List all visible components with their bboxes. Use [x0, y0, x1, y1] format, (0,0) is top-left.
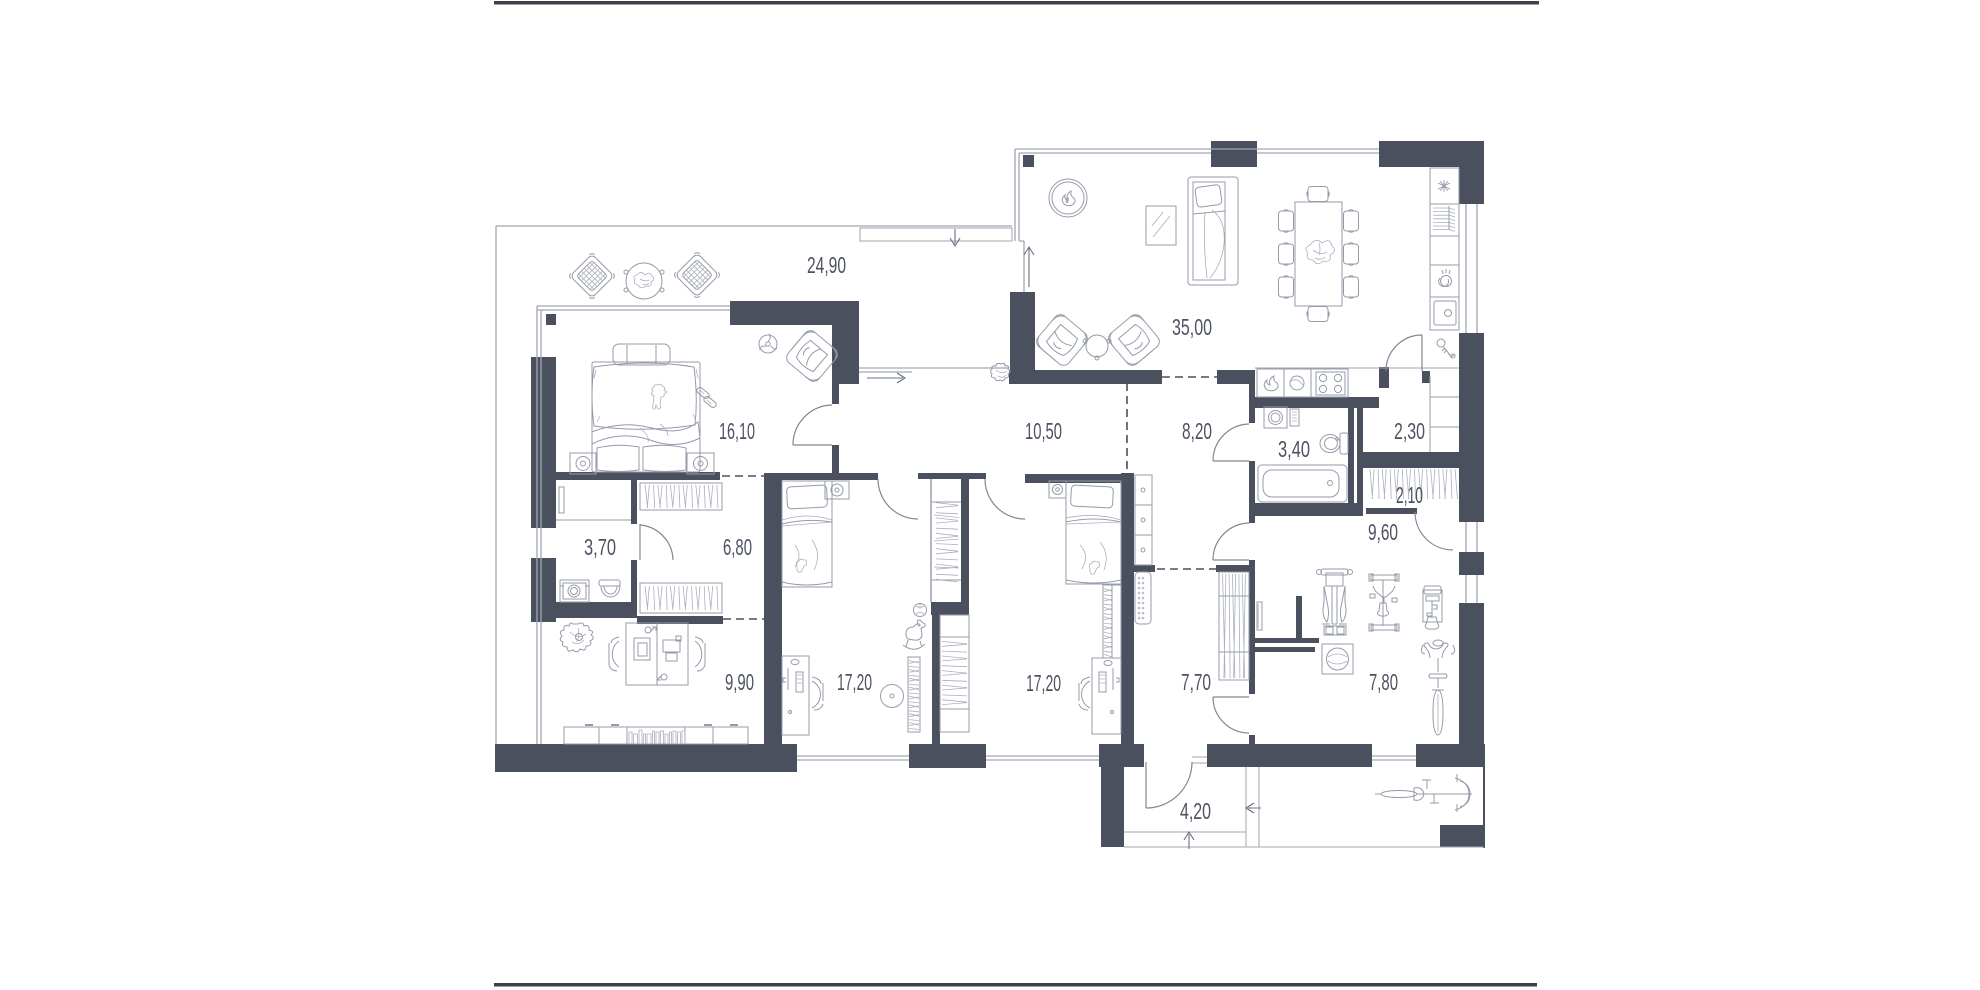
svg-text:24,90: 24,90 [807, 252, 846, 278]
svg-text:7,70: 7,70 [1181, 669, 1211, 695]
svg-text:16,10: 16,10 [719, 418, 755, 444]
svg-text:10,50: 10,50 [1025, 418, 1062, 444]
svg-text:8,20: 8,20 [1182, 418, 1212, 444]
svg-text:35,00: 35,00 [1172, 314, 1212, 340]
svg-text:3,70: 3,70 [584, 534, 616, 560]
svg-text:7,80: 7,80 [1369, 669, 1398, 695]
svg-text:6,80: 6,80 [723, 534, 752, 560]
svg-text:9,60: 9,60 [1368, 519, 1398, 545]
svg-text:2,10: 2,10 [1396, 482, 1423, 508]
svg-text:17,20: 17,20 [837, 669, 872, 695]
svg-text:2,30: 2,30 [1394, 418, 1425, 444]
svg-text:4,20: 4,20 [1180, 798, 1211, 824]
svg-text:17,20: 17,20 [1026, 670, 1061, 696]
svg-text:3,40: 3,40 [1278, 436, 1310, 462]
svg-text:9,90: 9,90 [725, 669, 754, 695]
